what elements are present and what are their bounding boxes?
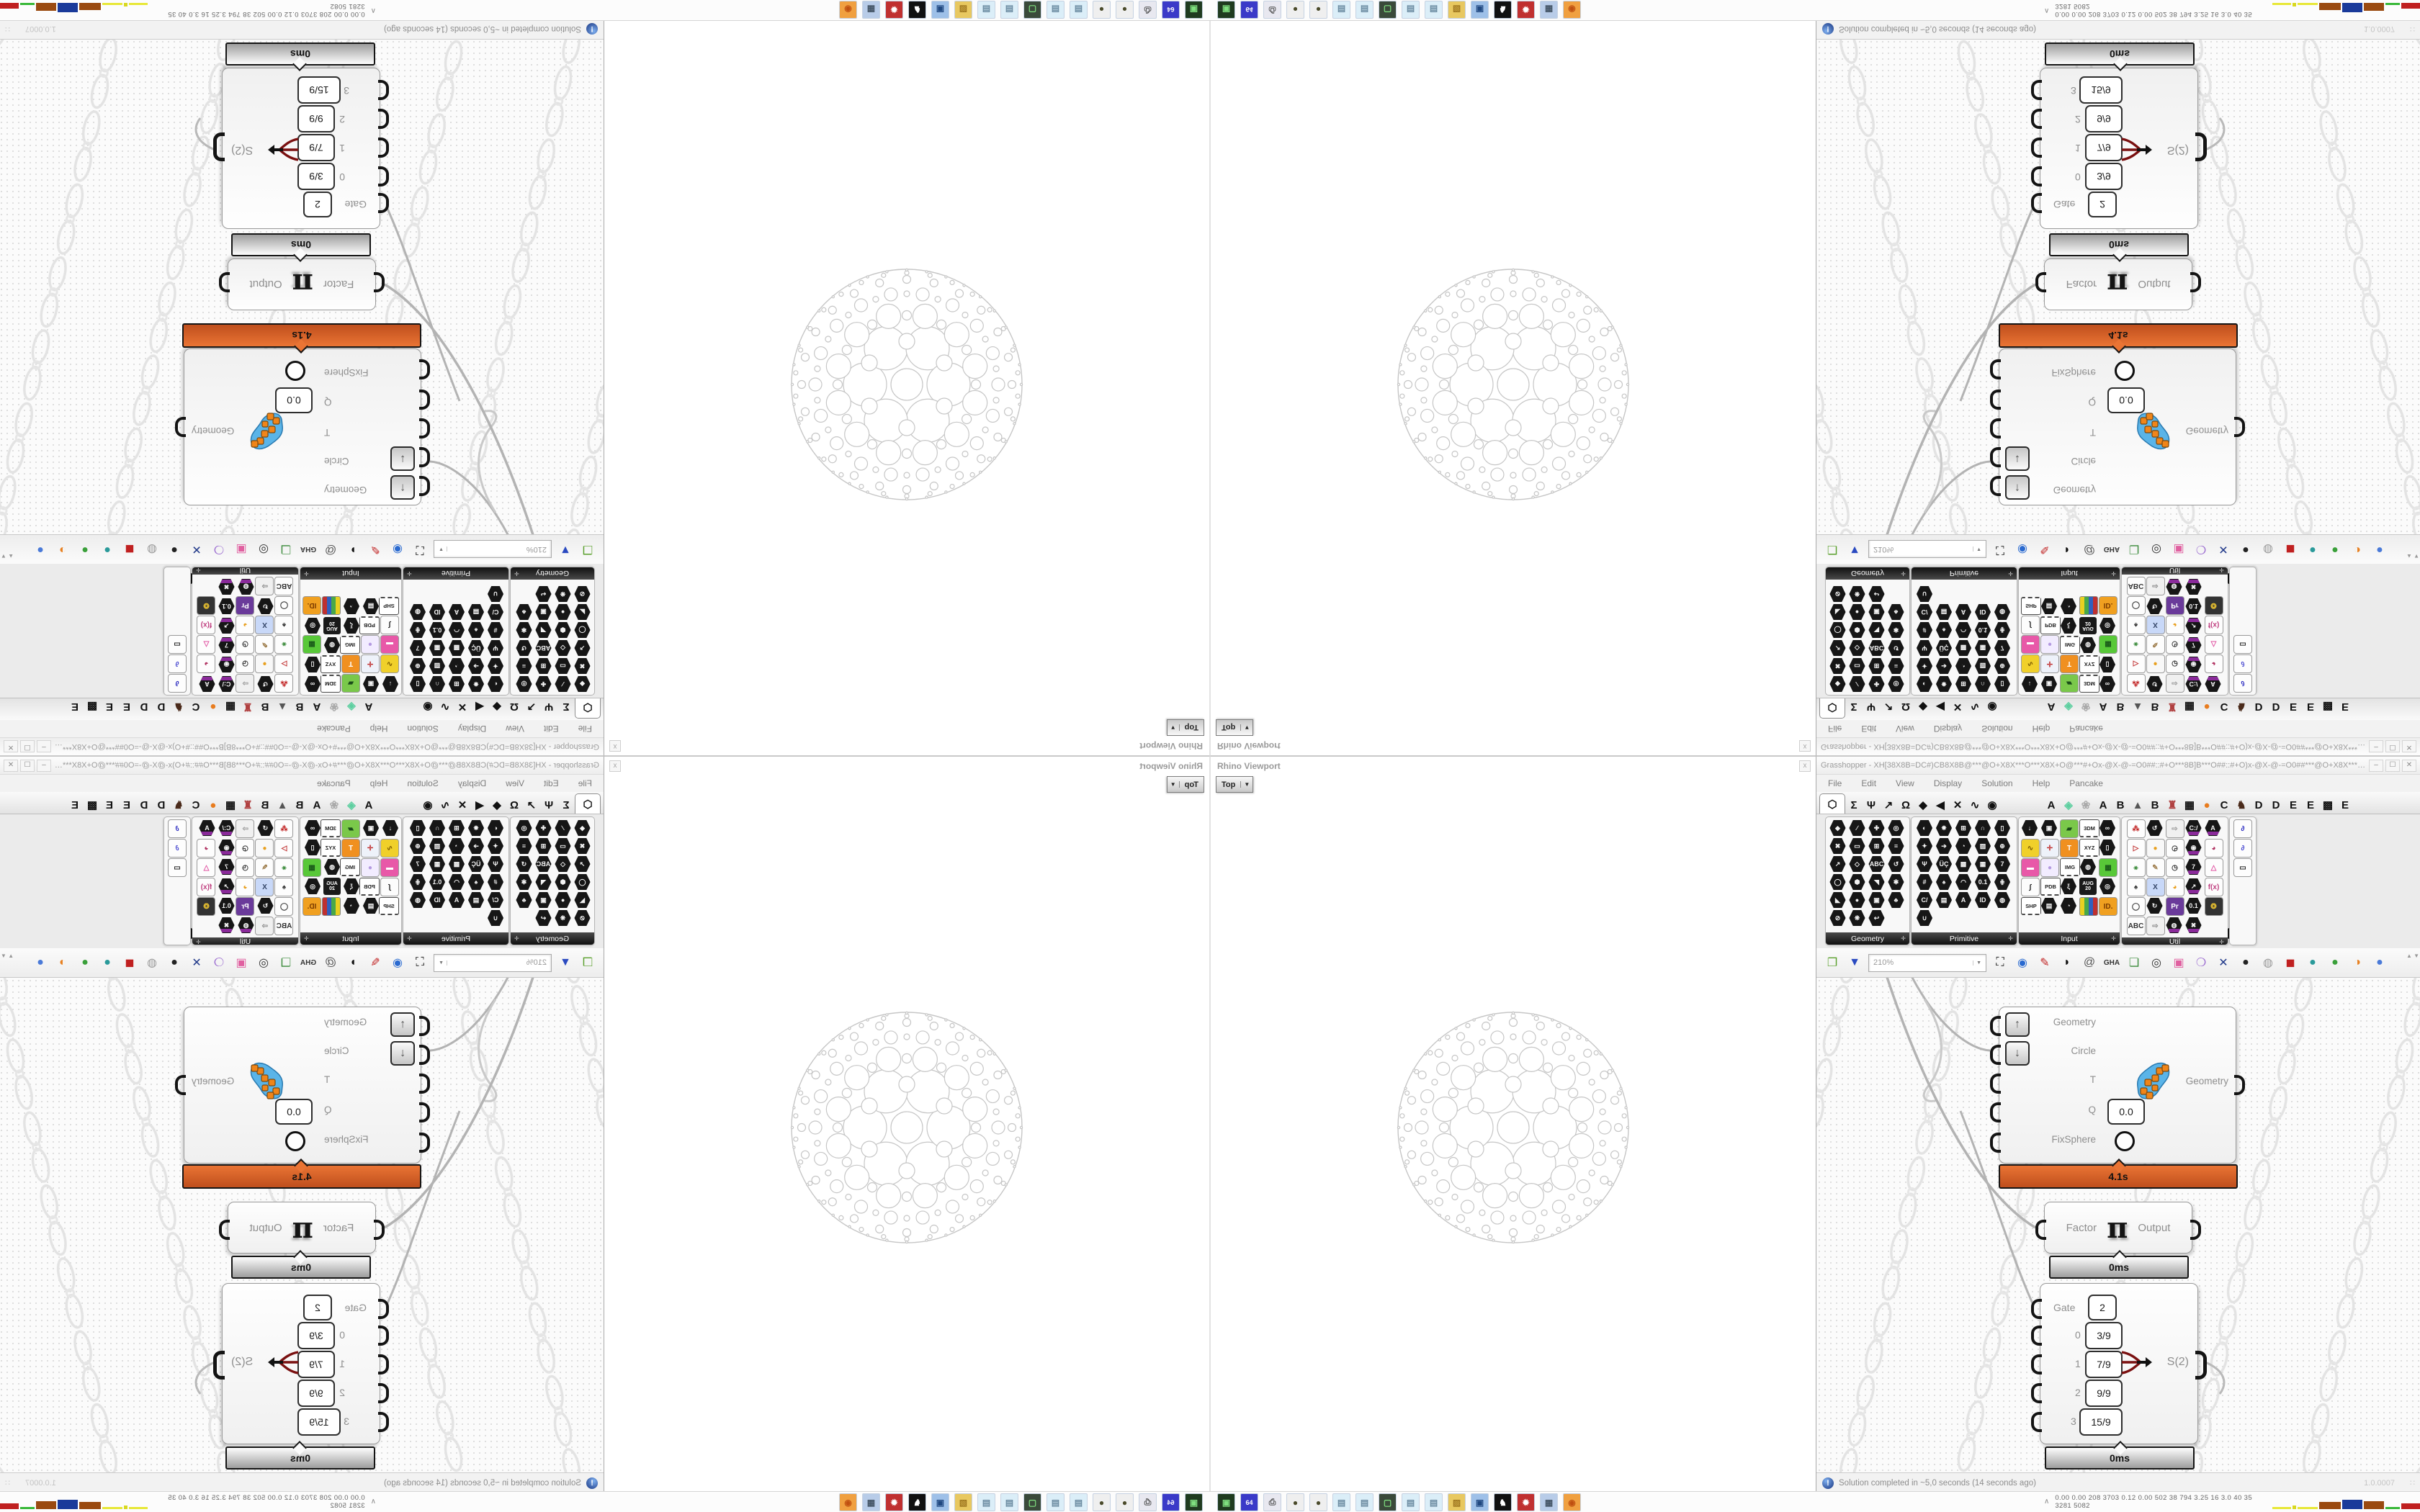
viewport-close-icon[interactable]: x [609,740,621,752]
projector-icon[interactable]: ▣ [931,1493,949,1511]
plugin-tab[interactable]: C [2215,698,2233,716]
palette-icon[interactable]: ◎ [304,878,321,895]
palette-icon[interactable]: ▨ [429,837,446,855]
preview-wire-icon[interactable]: ◍ [143,954,161,971]
palette-label-geometry[interactable]: Geometry [511,567,594,580]
dark-ball-icon[interactable]: ● [1116,1,1134,19]
palette-icon[interactable]: ◣ [574,891,591,909]
palette-icon[interactable]: ✱ [1888,873,1905,891]
input-port-3[interactable] [2031,80,2042,100]
palette-icon[interactable]: f(x) [2205,616,2223,634]
palette-icon[interactable]: ♠ [1935,873,1953,891]
input-port-1[interactable] [2031,1354,2042,1374]
palette-icon[interactable]: ◍ [238,578,255,595]
maximize-button[interactable]: ☐ [2385,760,2400,772]
input-port-fixsphere[interactable] [1990,359,2001,379]
sketch-pen-icon[interactable]: ✎ [367,954,384,971]
palette-icon[interactable]: ↺ [2146,675,2164,693]
firefox-icon[interactable]: ◉ [1563,1493,1581,1511]
palette-icon[interactable]: ∫ [2021,878,2040,896]
palette-icon[interactable]: ✖ [1829,657,1847,675]
palette-icon[interactable]: ⊞ [535,657,552,675]
palette-icon[interactable]: IMG [2060,636,2080,654]
capture-app-icon[interactable]: ▣ [1185,1493,1203,1511]
palette-icon[interactable]: ▦ [2099,635,2117,654]
cluster-box-icon[interactable]: ▣ [2170,954,2187,971]
tab-display[interactable]: ◉ [1984,698,2001,716]
palette-icon[interactable]: ● [2040,635,2059,654]
palette-icon[interactable]: ◍ [238,917,255,934]
row-value-box[interactable]: 15/9 [2079,1408,2123,1436]
folder-icon[interactable]: ▨ [954,1,972,19]
red-gear-icon[interactable]: ✹ [885,1493,903,1511]
palette-icon[interactable]: ▰ [341,674,360,693]
grasshopper-canvas[interactable]: ↑ ↓ Geometry Circle T Q FixSphere 0.0 [0,40,604,534]
display-green-icon[interactable]: ● [2326,954,2344,971]
palette-icon[interactable]: ◷ [2166,858,2184,877]
palette-icon[interactable]: ◔ [1955,837,1972,855]
tab-vector[interactable]: ↗ [1880,796,1897,814]
preview-off-icon[interactable]: ● [166,954,183,971]
menu-item-display[interactable]: Display [458,724,486,734]
plugin-tab[interactable]: ▲ [274,698,291,716]
palette-icon[interactable]: ❂ [2205,596,2223,615]
palette-icon[interactable]: ↺ [257,675,274,693]
plugin-tab[interactable]: ❀ [2077,796,2094,814]
display-blue-icon[interactable]: ● [2371,541,2388,558]
palette-icon[interactable]: IMG [2060,858,2080,876]
display-blue-icon[interactable]: ● [32,954,49,971]
palette-icon[interactable]: ⚹ [2127,858,2146,877]
floppy-64-icon[interactable]: 64 [1162,1493,1180,1511]
preview-wire-icon[interactable]: ◍ [2259,541,2277,558]
palette-icon[interactable]: ⊕ [1994,837,2011,855]
zoom-extents-icon[interactable]: ⛶ [1991,541,2009,558]
palette-icon[interactable]: ♣ [1888,891,1905,909]
plugin-tab[interactable]: D [2250,698,2267,716]
palette-icon[interactable]: ◷ [2166,635,2184,654]
notepad-icon[interactable]: ▤ [1070,1493,1088,1511]
palette-icon[interactable]: PDB [359,878,380,896]
palette-icon[interactable]: XYZ [2079,839,2099,857]
preview-wire-icon[interactable]: ◍ [2259,954,2277,971]
viewport-close-icon[interactable]: x [1799,760,1811,772]
palette-icon[interactable]: ↩ [1868,909,1886,927]
export-doc-icon[interactable]: ❏ [277,954,295,971]
menu-item-display[interactable]: Display [1934,724,1962,734]
palette-icon[interactable]: ▰ [341,819,360,838]
plugin-tab[interactable]: ▦ [2181,796,2198,814]
maximize-button[interactable]: ☐ [20,741,35,753]
display-green-icon[interactable]: ● [76,541,94,558]
plugin-tab[interactable]: A [2043,796,2060,814]
plugin-tab[interactable]: B [2146,698,2164,716]
palette-icon[interactable]: ÜÇ [467,639,485,657]
palette-icon[interactable]: ◯ [574,621,591,639]
palette-icon[interactable]: 3DM [2079,675,2099,693]
palette-icon[interactable]: ▣ [535,603,552,621]
plugin-tab[interactable]: B [2146,796,2164,814]
palette-icon[interactable]: SHP [2021,597,2041,615]
palette-icon[interactable]: ▦ [302,858,321,877]
preview-shaded-icon[interactable]: ◼ [121,954,138,971]
preview-shaded-icon[interactable]: ◼ [121,541,138,558]
palette-icon[interactable]: ∩ [1974,819,1991,837]
capture-app-icon[interactable]: ▣ [1217,1,1235,19]
palette-icon[interactable]: ◣ [574,603,591,621]
palette-icon[interactable]: ▤ [467,891,485,909]
input-port-2[interactable] [2031,1383,2042,1403]
palette-icon[interactable]: ↺ [1888,855,1905,873]
palette-icon[interactable]: ◕ [2205,654,2223,673]
menu-item-view[interactable]: View [506,778,524,788]
palette-icon[interactable]: ÜÇ [467,855,485,873]
plugin-tab[interactable]: ▲ [274,796,291,814]
palette-icon[interactable]: ÜÇ [1935,639,1953,657]
palette-icon[interactable]: ⇨ [2146,577,2165,595]
grasshopper-canvas[interactable]: ↑ ↓ Geometry Circle T Q FixSphere 0.0 [1816,40,2420,534]
palette-icon[interactable]: ↓ [2021,675,2038,693]
palette-icon[interactable]: ✦ [1916,657,1933,675]
palette-icon[interactable]: PDB [359,616,380,634]
palette-icon[interactable] [2079,596,2098,615]
palette-icon[interactable]: ↺ [1888,639,1905,657]
folder-icon[interactable]: ▨ [1448,1493,1466,1511]
plugin-tab[interactable]: ♜ [2164,698,2181,716]
toolbar-overflow-scroll[interactable]: ▲ ▼ [1,553,14,559]
row-value-box[interactable]: 15/9 [2079,76,2123,104]
palette-label-primitive[interactable]: Primitive [1912,932,2017,945]
palette-icon[interactable]: ⊞ [448,819,465,837]
palette-icon[interactable]: AUG20 [2079,617,2097,634]
tab-vector[interactable]: ↗ [1880,698,1897,716]
remote-at-icon[interactable]: @ [2081,541,2098,558]
close-button[interactable]: ✕ [2402,741,2416,753]
palette-icon[interactable]: ◍ [409,603,426,621]
palette-icon[interactable]: C:/ [218,819,236,837]
tab-transform[interactable]: ∿ [1966,698,1984,716]
firefox-icon[interactable]: ◉ [839,1493,857,1511]
palette-icon[interactable]: ID. [302,596,321,615]
tab-vector[interactable]: ↗ [523,698,540,716]
palette-icon[interactable]: ↩ [535,909,552,927]
palette-icon[interactable]: ◔ [2060,897,2077,914]
input-port-3[interactable] [2031,1412,2042,1432]
tab-display[interactable]: ◉ [419,796,436,814]
plugin-tab[interactable]: A [2043,698,2060,716]
palette-icon[interactable]: ◎ [516,675,533,693]
display-half-icon[interactable]: ◑ [2349,541,2366,558]
palette-icon[interactable]: ▨ [1974,837,1991,855]
fixsphere-toggle[interactable] [285,361,305,381]
palette-icon[interactable]: ▣ [2040,819,2058,837]
preview-eye-icon[interactable]: ◉ [389,954,406,971]
palette-icon[interactable]: ∪ [487,909,504,927]
palette-icon[interactable]: ➔ [1935,657,1953,675]
palette-icon[interactable]: T [2060,654,2079,673]
plugin-tab[interactable]: ● [205,698,222,716]
menu-item-edit[interactable]: Edit [1861,778,1876,788]
palette-icon[interactable]: ▯ [2099,839,2116,856]
fixsphere-toggle[interactable] [2115,1131,2135,1151]
palette-icon[interactable]: ✚ [535,675,552,693]
palette-icon[interactable]: C:/ [2185,675,2202,693]
preview-eye-icon[interactable]: ◉ [2014,954,2031,971]
tab-params[interactable]: ⬡ [575,698,601,719]
palette-icon[interactable]: ↗ [1829,855,1847,873]
palette-icon[interactable]: AUG20 [2079,878,2097,895]
flatten-button[interactable]: ↑ [2005,1012,2030,1037]
projector-icon[interactable]: ▣ [1471,1,1489,19]
palette-icon[interactable]: ◠ [1955,621,1972,639]
plugin-tab[interactable]: E [118,698,135,716]
palette-icon[interactable]: ▨ [429,657,446,675]
plugin-tab[interactable]: D [153,796,170,814]
projector-icon[interactable]: ▣ [1471,1493,1489,1511]
palette-icon[interactable]: ✎ [2146,858,2165,877]
palette-icon[interactable]: ▦ [2099,858,2117,877]
gha-reload-icon[interactable]: GHA [300,954,317,971]
palette-icon[interactable]: ▷ [2127,839,2146,858]
printer-doc-icon[interactable]: ⎙ [1139,1,1157,19]
palette-icon[interactable]: C:/ [218,675,236,693]
menu-item-file[interactable]: File [578,724,592,734]
plugin-tab[interactable]: ▩ [2319,698,2336,716]
palette-icon[interactable]: ▨ [1974,657,1991,675]
palette-icon[interactable]: ❂ [197,596,216,615]
palette-icon[interactable]: ▭ [555,657,572,675]
palette-icon[interactable]: C:/ [2185,819,2202,837]
palette-icon[interactable]: # [1916,621,1933,639]
plugin-tab[interactable]: ❀ [2077,698,2094,716]
minimize-button[interactable]: – [37,760,51,772]
palette-icon[interactable]: ID [429,603,446,621]
palette-icon[interactable]: X [256,878,274,896]
palette-icon[interactable]: ◉ [218,839,236,856]
palette-icon[interactable]: ∕ [555,675,572,693]
plugin-tab[interactable]: D [153,698,170,716]
notepad-icon[interactable]: ▤ [977,1493,995,1511]
palette-icon[interactable]: ⬢ [555,621,572,639]
preview-shaded-icon[interactable]: ◼ [2282,541,2299,558]
notepad-icon[interactable]: ▤ [1332,1493,1350,1511]
flatten-button[interactable]: ↑ [390,475,415,500]
row-value-box[interactable]: 9/9 [297,105,335,132]
preview-off-icon[interactable]: ● [2237,541,2254,558]
palette-icon[interactable]: ◐ [1916,675,1933,693]
palette-icon[interactable]: ↩ [535,585,552,603]
output-port-output[interactable] [219,1220,230,1240]
tab-curve[interactable]: Ω [1897,796,1914,814]
palette-icon[interactable]: ❂ [197,897,216,916]
palette-icon[interactable]: ● [555,891,572,909]
palette-icon[interactable]: Ψ [1916,639,1933,657]
palette-icon[interactable]: ↻ [257,598,274,615]
palette-label-primitive[interactable]: Primitive [403,932,508,945]
floppy-64-icon[interactable]: 64 [1240,1493,1258,1511]
palette-icon[interactable]: ▦ [1974,639,1991,657]
zoom-combo[interactable]: 210%▼ [434,954,552,972]
wire-display-icon[interactable]: ✕ [2215,541,2232,558]
dark-ball-icon[interactable]: ● [1116,1493,1134,1511]
palette-icon[interactable]: X [2146,616,2165,634]
plugin-tab[interactable]: ▩ [84,698,101,716]
palette-icon[interactable]: ✖ [2185,917,2202,934]
menu-item-pancake[interactable]: Pancake [317,724,351,734]
graft-button[interactable]: ↓ [390,1041,415,1066]
component-stream-filter[interactable]: Gate 2 0 3/9 1 7/9 S(2) [222,68,380,229]
camera-icon[interactable]: ◗ [2058,954,2076,971]
resize-grip[interactable]: ∷ [2410,1478,2415,1488]
menu-item-pancake[interactable]: Pancake [317,778,351,788]
output-port-geometry[interactable] [175,417,186,437]
plugin-tab[interactable]: ◈ [2060,698,2077,716]
palette-icon[interactable]: A [448,603,465,621]
palette-icon[interactable]: ABC [535,639,552,657]
palette-icon[interactable]: 0.1 [1974,873,1991,891]
tab-transform[interactable]: ∿ [436,698,454,716]
sketch-pen-icon[interactable]: ✎ [2036,541,2053,558]
palette-icon[interactable]: SHP [379,597,399,615]
row-value-box[interactable]: 9/9 [297,1380,335,1407]
palette-icon[interactable]: ▯ [2099,656,2116,673]
palette-icon[interactable]: ↺ [257,819,274,837]
palette-icon[interactable]: SHP [2021,897,2041,915]
palette-icon[interactable]: X [2146,878,2165,896]
dark-ball-icon[interactable]: ● [1286,1493,1304,1511]
palette-icon[interactable]: ◇ [1849,855,1866,873]
palette-icon[interactable]: XYZ [321,839,341,857]
display-green-icon[interactable]: ● [76,954,94,971]
palette-icon[interactable]: ⬢ [555,873,572,891]
palette-icon[interactable]: ✦ [487,657,504,675]
input-port-gate[interactable] [2031,1299,2042,1319]
gha-reload-icon[interactable]: GHA [2103,954,2120,971]
palette-label-util[interactable]: Util [192,937,298,945]
palette-icon[interactable]: ▦ [1974,855,1991,873]
palette-icon[interactable]: ❂ [2205,897,2223,916]
tab-sets[interactable]: Ψ [1863,796,1880,814]
preview-shaded-icon[interactable]: ◼ [2282,954,2299,971]
viewport-view-dropdown[interactable]: Top ▼ [1167,776,1204,793]
plugin-tab[interactable]: E [118,796,135,814]
palette-label-geometry[interactable]: Geometry [511,932,594,945]
palette-icon[interactable]: SHP [379,897,399,915]
palette-icon[interactable]: ▩ [448,639,465,657]
terminal-icon[interactable]: ▢ [1379,1493,1397,1511]
tab-maths[interactable]: Σ [1845,698,1863,716]
palette-icon[interactable]: ✸ [1935,819,1953,837]
palette-icon[interactable]: ◯ [275,596,294,615]
palette-icon[interactable]: Ψ [1916,855,1933,873]
palette-icon[interactable]: ▣ [535,891,552,909]
palette-icon[interactable]: ⇨ [256,577,274,595]
tab-curve[interactable]: Ω [506,698,523,716]
palette-icon[interactable]: XYZ [321,655,341,673]
palette-icon[interactable]: X [256,616,274,634]
palette-icon[interactable]: ABC [535,855,552,873]
graft-button[interactable]: ↓ [2005,1041,2030,1066]
tab-display[interactable]: ◉ [1984,796,2001,814]
save-file-icon[interactable]: ▼ [557,954,574,971]
menu-item-edit[interactable]: Edit [544,778,559,788]
output-port-s2[interactable] [2195,132,2207,161]
dark-ball-icon[interactable]: ● [1286,1,1304,19]
cat-app-icon[interactable]: ♞ [908,1,926,19]
palette-icon[interactable]: 7 [2185,636,2202,654]
row-value-box[interactable]: 7/9 [2085,134,2123,161]
menu-item-edit[interactable]: Edit [1861,724,1876,734]
calculator-icon[interactable]: ▦ [862,1493,880,1511]
palette-icon[interactable]: ∂ [168,654,187,673]
palette-icon[interactable]: ◥ [535,873,552,891]
palette-icon[interactable]: ▷ [275,654,294,673]
palette-icon[interactable]: ❋ [555,585,572,603]
palette-icon[interactable]: ✎ [256,858,274,877]
palette-icon[interactable]: ⋕ [1994,873,2011,891]
notepad-icon[interactable]: ▤ [1000,1,1018,19]
camera-icon[interactable]: ◗ [344,541,362,558]
camera-icon[interactable]: ◗ [2058,541,2076,558]
palette-icon[interactable]: ◕ [236,616,255,634]
plugin-tab[interactable]: ❀ [326,698,343,716]
menu-item-help[interactable]: Help [2033,724,2051,734]
palette-icon[interactable]: ✦ [487,837,504,855]
palette-icon[interactable]: ID [1974,891,1991,909]
notepad-icon[interactable]: ▤ [1070,1,1088,19]
palette-icon[interactable]: ◇ [1849,639,1866,657]
grasshopper-window[interactable]: Grasshopper - XH[38X8B=DC#)CB8X8B@***@O+… [0,756,604,1493]
palette-icon[interactable]: ▩ [448,855,465,873]
palette-icon[interactable]: ⊕ [409,837,426,855]
palette-icon[interactable]: AUG20 [323,878,341,895]
palette-icon[interactable]: 0.1 [429,873,446,891]
input-port-factor[interactable] [2035,272,2046,292]
flatten-button[interactable]: ↑ [2005,475,2030,500]
dark-ball-icon[interactable]: ● [1309,1493,1327,1511]
palette-icon[interactable]: ◕ [197,839,216,858]
palette-icon[interactable]: ▭ [1849,657,1866,675]
palette-icon[interactable]: ♠ [1935,621,1953,639]
palette-icon[interactable]: ♠ [467,621,485,639]
plugin-tab[interactable]: D [2250,796,2267,814]
palette-icon[interactable]: ⚹ [275,858,294,877]
finder-icon[interactable]: ◎ [255,954,272,971]
palette-icon[interactable]: T [341,839,360,858]
wire-display-icon[interactable]: ✕ [2215,954,2232,971]
palette-icon[interactable]: ID. [302,897,321,916]
palette-icon[interactable]: ↓ [382,819,399,837]
printer-doc-icon[interactable]: ⎙ [1263,1,1281,19]
plugin-tab[interactable]: ▦ [2181,698,2198,716]
palette-icon[interactable]: PDB [2040,616,2061,634]
viewport-close-icon[interactable]: x [1799,740,1811,752]
palette-icon[interactable]: ∫ [380,616,399,634]
palette-icon[interactable]: ↗ [574,639,591,657]
display-blue-icon[interactable]: ● [2371,954,2388,971]
wire-display-icon[interactable]: ✕ [188,541,205,558]
palette-icon[interactable]: ✱ [516,621,533,639]
palette-icon[interactable]: ↺ [516,855,533,873]
plugin-tab[interactable]: C [187,796,205,814]
palette-icon[interactable]: ◠ [448,873,465,891]
floppy-64-icon[interactable]: 64 [1240,1,1258,19]
palette-icon[interactable]: ◷ [236,635,255,654]
tab-intersect[interactable]: ✕ [1949,698,1966,716]
notepad-icon[interactable]: ▤ [977,1,995,19]
palette-icon[interactable]: ↺ [2146,819,2164,837]
rhino-viewport-window[interactable]: Rhino Viewport x Top ▼ [604,19,1210,756]
